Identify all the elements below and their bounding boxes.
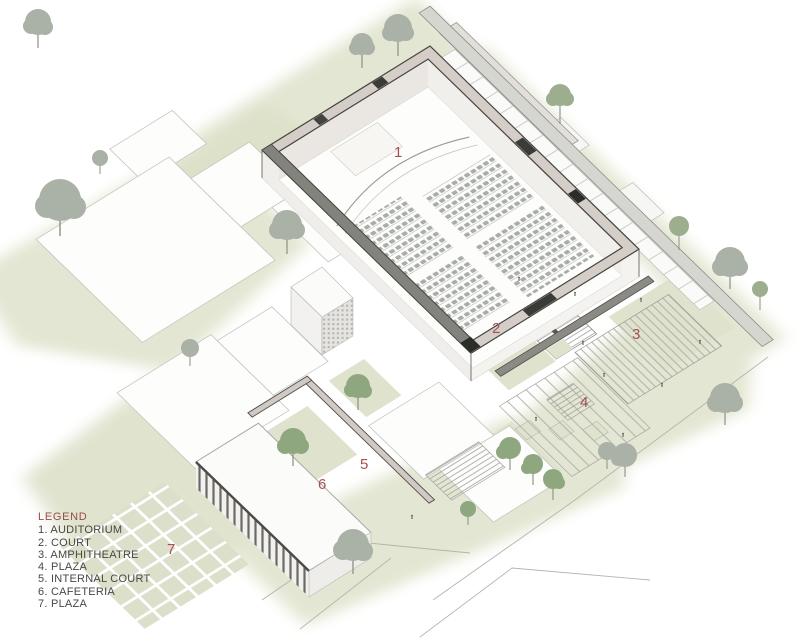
axonometric-site-drawing: 1 2 3 4 5 6 7 LEGEND 1. AUDITORIUM 2. CO…: [0, 0, 800, 640]
legend-title: LEGEND: [38, 511, 150, 523]
marker-auditorium: 1: [394, 144, 402, 161]
marker-plaza: 4: [580, 394, 588, 411]
legend-item-internal-court: 5. INTERNAL COURT: [38, 573, 150, 585]
marker-court: 2: [492, 320, 500, 337]
marker-cafeteria: 6: [318, 476, 326, 493]
legend-item-plaza: 4. PLAZA: [38, 561, 150, 573]
marker-plaza-south: 7: [167, 541, 175, 558]
legend-item-court: 2. COURT: [38, 537, 150, 549]
legend-item-amphitheatre: 3. AMPHITHEATRE: [38, 549, 150, 561]
marker-amphitheatre: 3: [632, 326, 640, 343]
legend: LEGEND 1. AUDITORIUM 2. COURT 3. AMPHITH…: [38, 511, 150, 610]
marker-internal-court: 5: [360, 456, 368, 473]
legend-item-cafeteria: 6. CAFETERIA: [38, 586, 150, 598]
legend-item-auditorium: 1. AUDITORIUM: [38, 524, 150, 536]
legend-item-plaza-south: 7. PLAZA: [38, 598, 150, 610]
